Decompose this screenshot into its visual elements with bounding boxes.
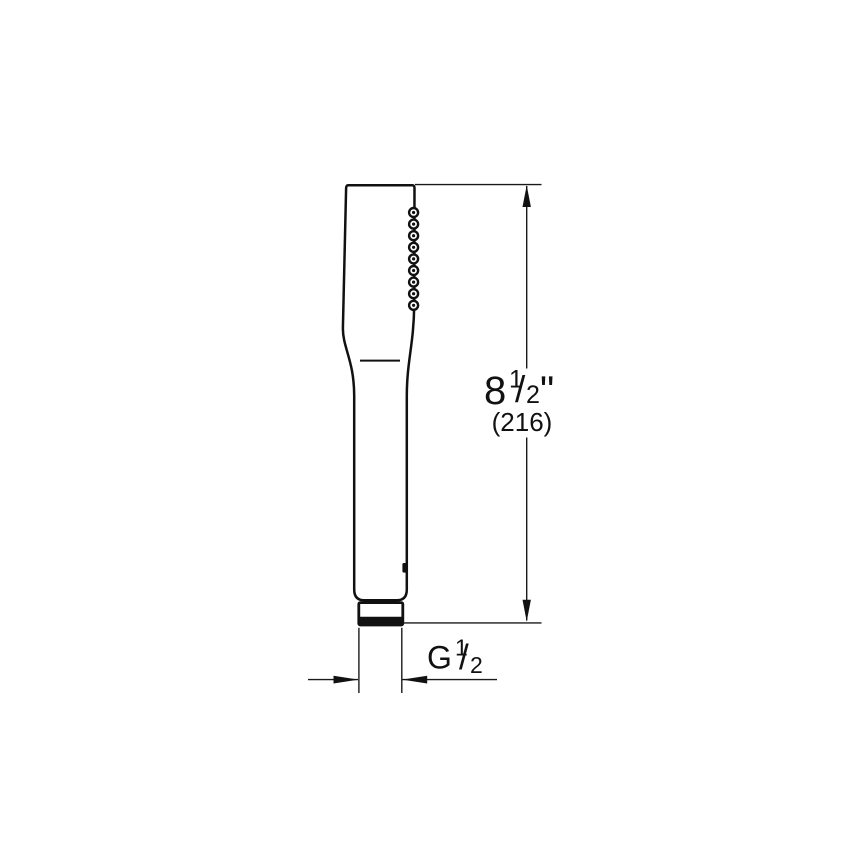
drawing-canvas: 8 1 / 2 " (216) G 1 / 2 — [0, 0, 868, 868]
spray-mode-notch — [402, 563, 406, 573]
arrow-left-icon — [402, 676, 427, 684]
hand-shower-diagram: 8 1 / 2 " (216) G 1 / 2 — [0, 0, 868, 868]
shower-outline — [343, 185, 415, 600]
arrow-down-icon — [523, 600, 531, 622]
height-dimension-metric: (216) — [492, 407, 553, 437]
thread-dimension-label: G 1 / 2 — [427, 635, 483, 679]
height-dimension-label: 8 1 / 2 " — [484, 366, 554, 414]
spray-nozzle-dots — [409, 208, 418, 310]
connector-thread-band — [358, 617, 403, 626]
height-dimension: 8 1 / 2 " (216) — [403, 185, 554, 623]
shower-body — [343, 185, 418, 626]
arrow-up-icon — [523, 185, 531, 207]
thread-dimension: G 1 / 2 — [308, 628, 497, 693]
arrow-right-icon — [334, 676, 359, 684]
